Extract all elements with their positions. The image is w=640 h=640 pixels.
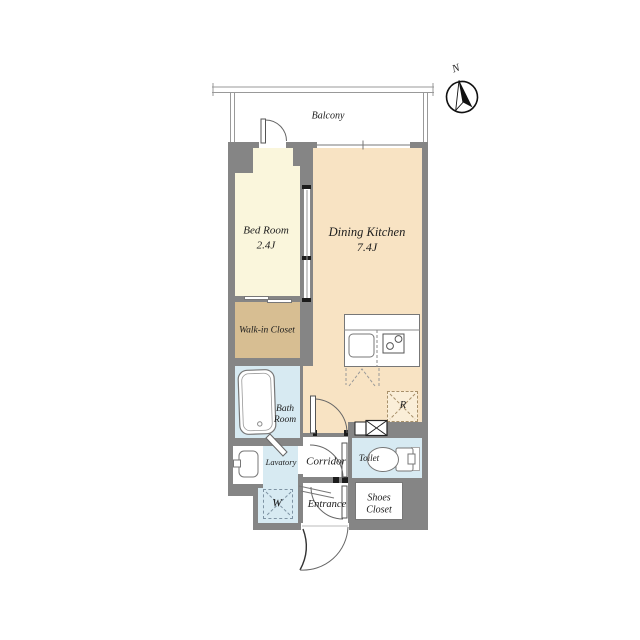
kitchen-door-leaf: [311, 396, 316, 433]
balcony-window: [317, 141, 410, 150]
lavatory-sink-faucet: [234, 460, 241, 467]
kitchen-sink: [349, 334, 374, 357]
lavatory-label: Lavatory: [266, 458, 297, 468]
entry-door-arc: [300, 527, 348, 570]
toilet-label: Toilet: [359, 453, 379, 463]
balcony-door-leaf: [261, 119, 266, 143]
bedroom-label: Bed Room: [243, 225, 289, 238]
counter-clearance-dashes: [346, 368, 379, 388]
plan-linework: [0, 0, 640, 640]
stove-burner: [395, 336, 402, 343]
entry-door-leaf: [300, 529, 306, 570]
dining-kitchen-size-label: 7.4J: [357, 241, 377, 255]
bathtub: [238, 369, 276, 434]
stove-burner: [387, 343, 394, 350]
bedroom-size-label: 2.4J: [257, 240, 276, 253]
compass-icon: [444, 78, 480, 115]
walk-in-closet-label: Walk-in Closet: [239, 326, 295, 337]
entrance-label: Entrance: [308, 499, 347, 511]
balcony-door-arc: [266, 120, 287, 141]
kitchen-door-arc: [316, 399, 347, 433]
washer-label: W: [272, 497, 282, 510]
duct-box: [355, 422, 366, 435]
dining-kitchen-label: Dining Kitchen: [329, 225, 406, 239]
refrigerator-label: R: [400, 400, 406, 412]
balcony-railing: [212, 83, 434, 96]
balcony-label: Balcony: [312, 110, 345, 122]
bath-room-label: Bath Room: [274, 404, 296, 426]
toilet-tank-notch: [408, 454, 415, 464]
shoes-closet-label: Shoes Closet: [366, 493, 392, 516]
entrance-step-lines: [299, 486, 334, 498]
corridor-label: Corridor: [306, 456, 346, 469]
floor-plan: Balcony Bed Room 2.4J Dining Kitchen 7.4…: [0, 0, 640, 640]
bath-door-leaf: [266, 434, 287, 456]
lavatory-sink: [239, 451, 258, 477]
